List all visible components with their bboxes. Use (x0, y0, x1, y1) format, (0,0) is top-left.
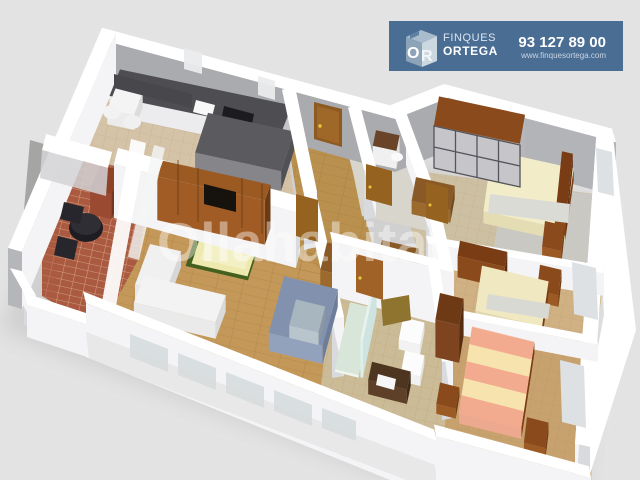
svg-text:O: O (407, 45, 419, 62)
svg-text:ORTEGA: ORTEGA (443, 44, 498, 58)
svg-text:www.finquesortega.com: www.finquesortega.com (520, 51, 606, 60)
svg-text:93 127 89 00: 93 127 89 00 (518, 34, 606, 51)
svg-text:Ollahabitat: Ollahabitat (157, 211, 447, 273)
svg-text:FINQUES: FINQUES (443, 32, 496, 44)
svg-text:R: R (421, 48, 433, 65)
